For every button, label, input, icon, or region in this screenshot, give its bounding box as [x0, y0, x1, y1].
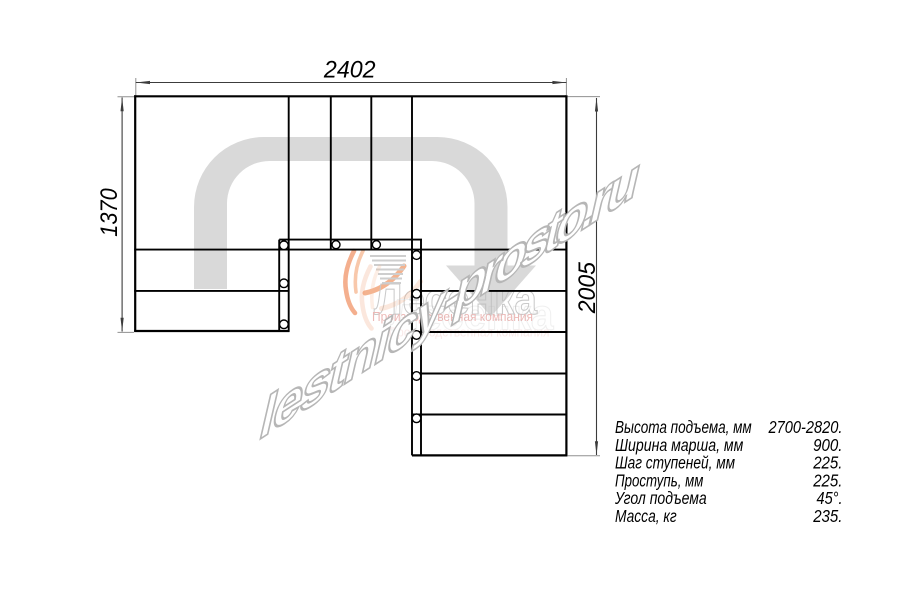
svg-text:235.: 235.	[812, 506, 842, 526]
svg-text:1370: 1370	[96, 188, 123, 237]
svg-text:Масса, кг: Масса, кг	[615, 506, 677, 526]
svg-text:2402: 2402	[323, 56, 376, 83]
svg-text:2005: 2005	[574, 262, 601, 315]
